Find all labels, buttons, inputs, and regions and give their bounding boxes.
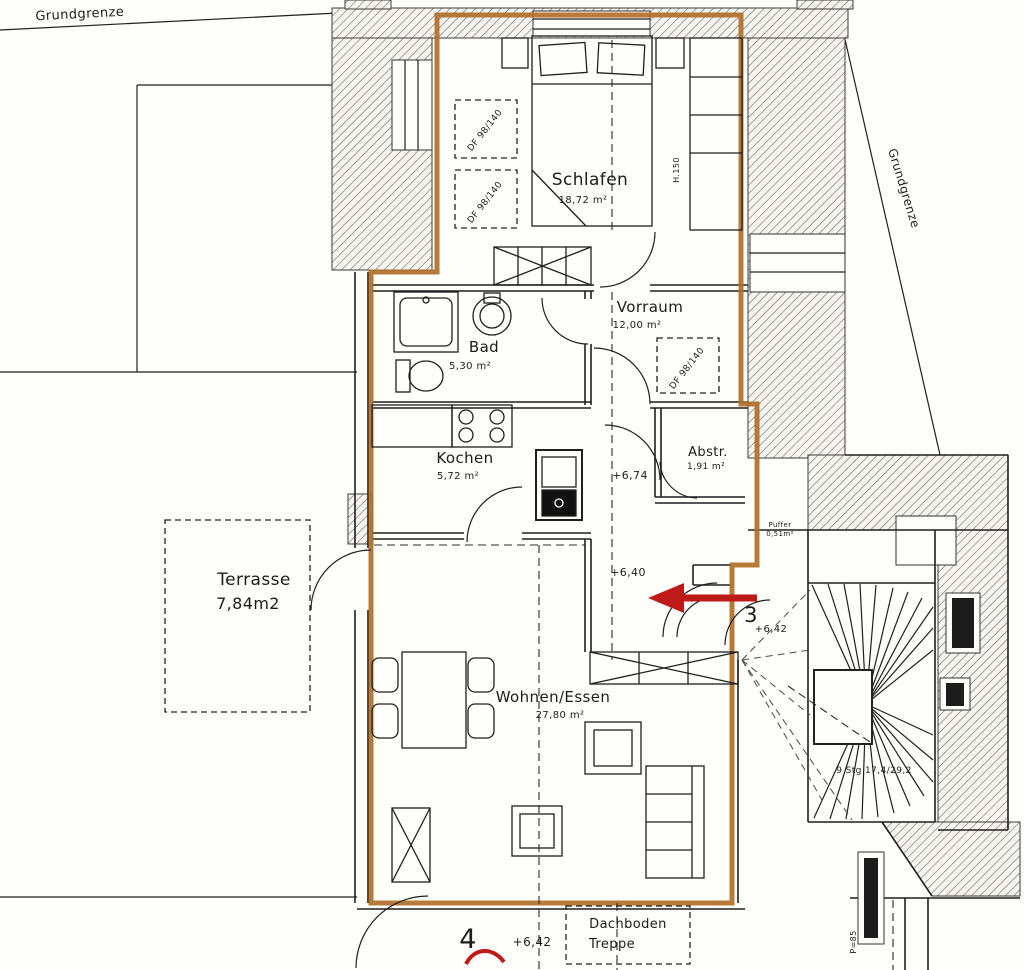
nightstand-right — [656, 38, 684, 68]
room-terrasse-name: Terrasse — [216, 570, 290, 590]
room-wohnen-area: 27,80 m² — [536, 710, 585, 721]
level-living: +6,40 — [610, 566, 646, 579]
height-marker: H.150 — [672, 157, 681, 183]
room-abstr-name: Abstr. — [688, 445, 728, 460]
stair-note: 9 Stg 17,4/29,2 — [836, 766, 912, 776]
room-wohnen-name: Wohnen/Essen — [496, 688, 611, 706]
label-grundgrenze-right: Grundgrenze — [885, 147, 922, 230]
right-wall-window — [750, 234, 845, 292]
roof-window-label-1: DF 98/140 — [466, 108, 505, 154]
built-in-wardrobe — [494, 247, 591, 285]
room-terrasse-area: 7,84m2 — [216, 594, 280, 613]
terrasse-outline — [165, 520, 310, 712]
level-bottom: +6,42 — [513, 935, 552, 949]
floor-plan-svg: Grundgrenze Grundgrenze Schlafen 18,72 m… — [0, 0, 1024, 970]
coffee-table — [512, 806, 562, 856]
roof-window-label-2: DF 98/140 — [466, 180, 505, 226]
direction-arrow-head — [648, 583, 684, 613]
unit-number-4: 4 — [459, 924, 477, 955]
room-bad-name: Bad — [469, 338, 499, 356]
dining-set — [372, 652, 494, 748]
nightstand-left — [502, 38, 528, 68]
kitchen-counter — [372, 405, 512, 447]
level-stair-landing: +6,42 — [755, 624, 788, 635]
room-vorraum-area: 12,00 m² — [613, 320, 662, 331]
roof-window-label-3: DF 98/140 — [668, 346, 707, 392]
floor-plan-page: Grundgrenze Grundgrenze Schlafen 18,72 m… — [0, 0, 1024, 970]
attic-stairs-line2: Treppe — [588, 937, 635, 952]
stair-newel — [814, 670, 872, 744]
buffer-label-line2: 0,51m² — [766, 530, 794, 538]
lower-floor-outline — [0, 85, 357, 897]
room-kochen-area: 5,72 m² — [437, 471, 479, 482]
stair-wall-niche — [896, 516, 956, 565]
room-abstr-area: 1,91 m² — [687, 462, 725, 472]
bath-basin — [473, 293, 511, 335]
attic-stairs-line1: Dachboden — [589, 917, 667, 932]
bedroom-closet — [690, 38, 742, 230]
attic-stairs-box — [566, 906, 690, 964]
toilet — [396, 360, 443, 392]
sofa — [646, 766, 704, 878]
room-bad-area: 5,30 m² — [449, 361, 491, 372]
room-schlafen-name: Schlafen — [552, 170, 628, 190]
room-vorraum-name: Vorraum — [617, 298, 683, 316]
cabinet-x — [392, 808, 430, 882]
bedroom-left-window — [392, 60, 432, 150]
level-hall: +6,74 — [612, 469, 648, 482]
door-number-3: 3 — [744, 603, 758, 627]
buffer-label-line1: Puffer — [768, 521, 791, 529]
kitchen-sink-unit — [536, 450, 582, 520]
room-schlafen-area: 18,72 m² — [559, 195, 608, 206]
bath-vanity — [394, 292, 458, 352]
side-table-1 — [585, 722, 641, 774]
label-grundgrenze-left: Grundgrenze — [35, 5, 125, 25]
spiral-staircase — [788, 584, 933, 819]
post-label: P=85 — [849, 930, 858, 953]
room-kochen-name: Kochen — [436, 449, 493, 467]
